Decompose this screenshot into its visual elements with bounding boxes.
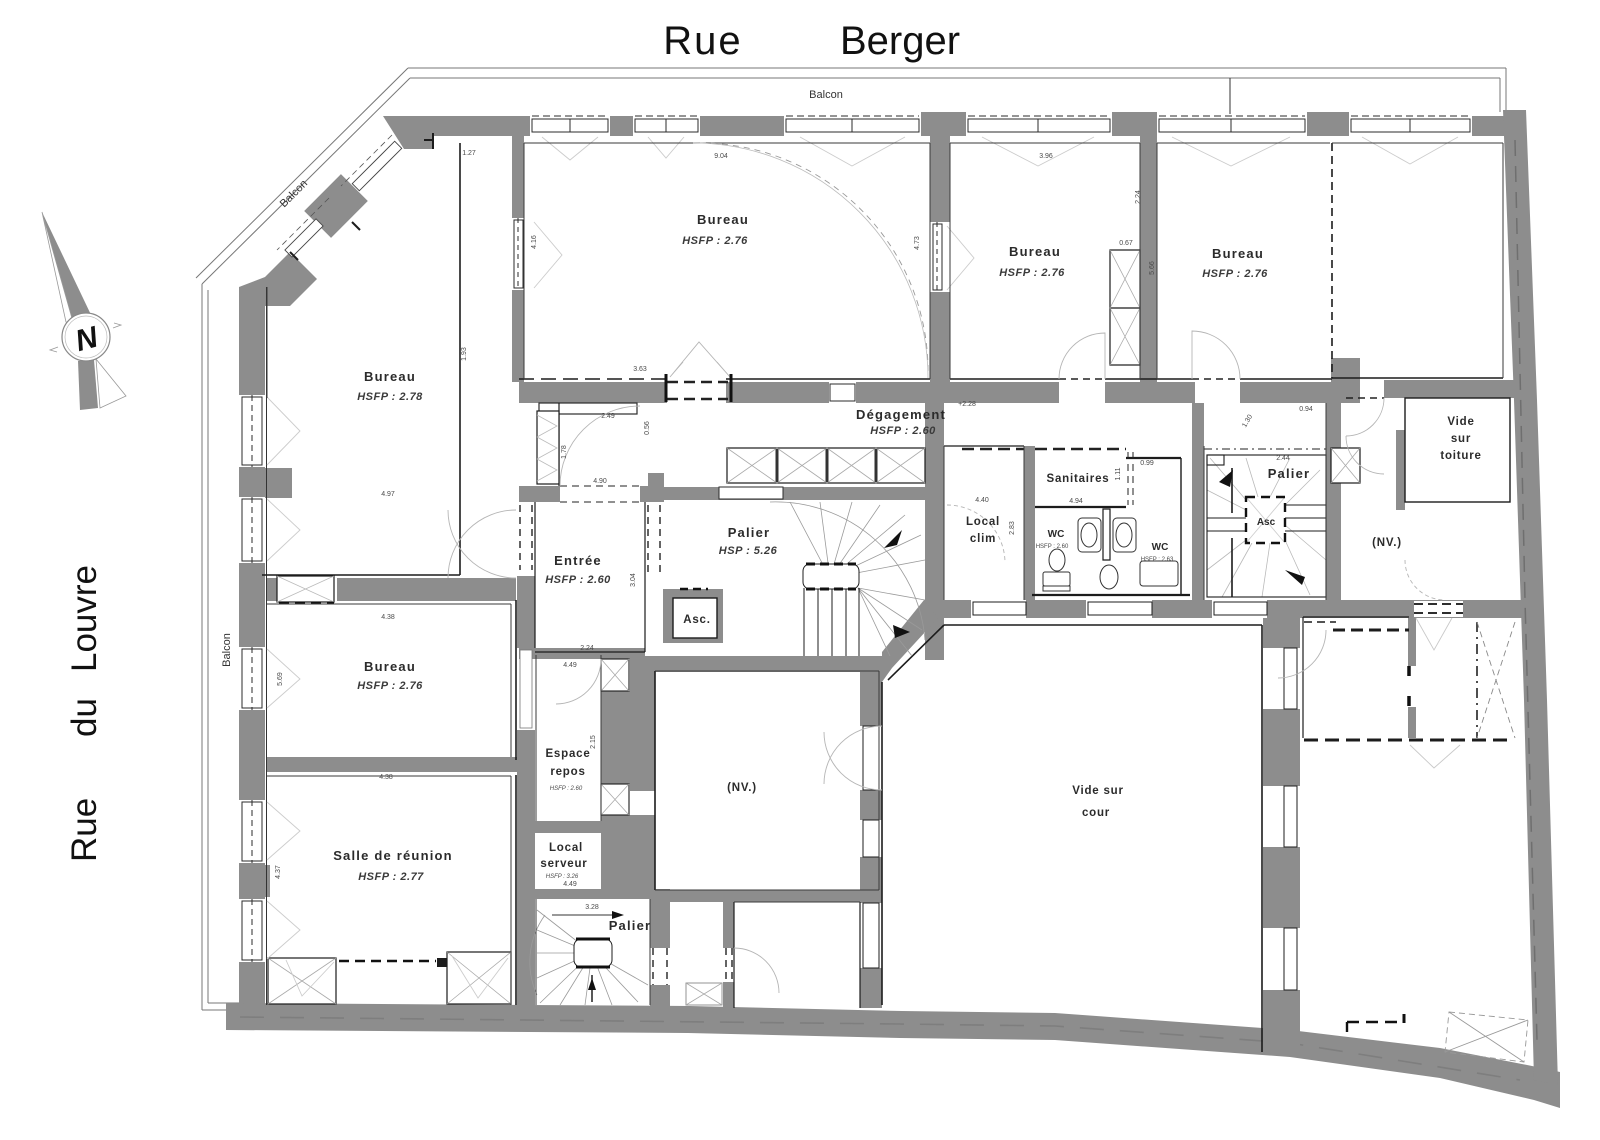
svg-text:5.66: 5.66	[1149, 261, 1156, 275]
svg-text:WC: WC	[1152, 542, 1169, 553]
svg-text:HSFP : 2.76: HSFP : 2.76	[999, 267, 1065, 279]
svg-text:Vide: Vide	[1447, 416, 1474, 428]
svg-text:2.83: 2.83	[1009, 521, 1016, 535]
svg-text:9.04: 9.04	[714, 153, 728, 160]
svg-text:HSFP : 2.77: HSFP : 2.77	[358, 871, 424, 883]
svg-text:Louvre: Louvre	[65, 565, 104, 672]
svg-text:Asc.: Asc.	[683, 614, 711, 626]
svg-text:Balcon: Balcon	[221, 633, 233, 667]
svg-text:1.27: 1.27	[462, 150, 476, 157]
svg-text:HSFP : 2.76: HSFP : 2.76	[357, 680, 423, 692]
svg-text:HSFP : 2.60: HSFP : 2.60	[545, 574, 611, 586]
svg-text:Palier: Palier	[728, 525, 771, 540]
svg-text:4.49: 4.49	[563, 662, 577, 669]
svg-text:3.28: 3.28	[585, 904, 599, 911]
svg-text:Local: Local	[966, 516, 1000, 528]
svg-text:Bureau: Bureau	[697, 212, 749, 227]
svg-text:repos: repos	[550, 766, 585, 778]
svg-text:HSFP : 2.60: HSFP : 2.60	[870, 425, 936, 437]
svg-text:cour: cour	[1082, 807, 1110, 819]
svg-text:HSFP : 3.26: HSFP : 3.26	[546, 874, 579, 880]
svg-text:sur: sur	[1451, 433, 1471, 445]
svg-text:4.73: 4.73	[914, 236, 921, 250]
svg-text:(NV.): (NV.)	[1372, 537, 1402, 549]
svg-text:HSFP : 2.63: HSFP : 2.63	[1141, 557, 1174, 563]
svg-text:Local: Local	[549, 842, 583, 854]
svg-text:2.15: 2.15	[590, 735, 597, 749]
svg-text:Palier: Palier	[609, 918, 652, 933]
svg-text:HSFP : 2.76: HSFP : 2.76	[1202, 268, 1268, 280]
svg-text:4.38: 4.38	[379, 774, 393, 781]
svg-text:0.56: 0.56	[644, 421, 651, 435]
svg-text:3.04: 3.04	[630, 573, 637, 587]
svg-text:HSFP : 2.60: HSFP : 2.60	[550, 786, 583, 792]
svg-text:1.11: 1.11	[1115, 467, 1122, 480]
svg-text:HSFP : 2.78: HSFP : 2.78	[357, 391, 423, 403]
svg-text:+2.28: +2.28	[958, 401, 976, 408]
svg-text:4.90: 4.90	[593, 478, 607, 485]
svg-text:Espace: Espace	[545, 748, 590, 760]
svg-text:(NV.): (NV.)	[727, 782, 757, 794]
svg-text:4.37: 4.37	[275, 865, 282, 879]
svg-text:2.44: 2.44	[1276, 455, 1290, 462]
svg-text:4.16: 4.16	[531, 235, 538, 249]
svg-text:3.63: 3.63	[633, 366, 647, 373]
svg-text:4.49: 4.49	[563, 881, 577, 888]
svg-text:Bureau: Bureau	[364, 369, 416, 384]
svg-text:toiture: toiture	[1440, 450, 1481, 462]
svg-text:1.78: 1.78	[561, 445, 568, 459]
svg-text:Entrée: Entrée	[554, 553, 602, 568]
svg-text:clim: clim	[970, 533, 996, 545]
svg-text:1.93: 1.93	[461, 347, 468, 361]
svg-text:du: du	[65, 698, 104, 737]
svg-text:Vide sur: Vide sur	[1072, 785, 1124, 797]
svg-text:0.94: 0.94	[1299, 406, 1313, 413]
svg-text:Asc: Asc	[1257, 517, 1276, 528]
svg-text:5.69: 5.69	[277, 672, 284, 686]
svg-text:Dégagement: Dégagement	[856, 407, 946, 422]
svg-text:Bureau: Bureau	[1009, 244, 1061, 259]
svg-text:Rue: Rue	[663, 19, 742, 63]
svg-text:4.94: 4.94	[1069, 498, 1083, 505]
svg-text:Berger: Berger	[840, 19, 960, 63]
svg-text:HSP : 5.26: HSP : 5.26	[719, 545, 778, 557]
svg-text:HSFP : 2.60: HSFP : 2.60	[1036, 544, 1069, 550]
svg-text:Salle de réunion: Salle de réunion	[333, 848, 453, 863]
svg-text:2.24: 2.24	[1135, 190, 1142, 204]
svg-text:Bureau: Bureau	[1212, 246, 1264, 261]
svg-text:Rue: Rue	[65, 798, 104, 862]
svg-text:4.38: 4.38	[381, 614, 395, 621]
svg-text:4.97: 4.97	[381, 491, 395, 498]
svg-text:Balcon: Balcon	[809, 89, 843, 101]
svg-text:2.49: 2.49	[601, 413, 615, 420]
svg-text:0.67: 0.67	[1119, 240, 1133, 247]
svg-text:Sanitaires: Sanitaires	[1047, 473, 1110, 485]
svg-text:HSFP : 2.76: HSFP : 2.76	[682, 235, 748, 247]
svg-text:serveur: serveur	[540, 858, 587, 870]
svg-text:4.40: 4.40	[975, 497, 989, 504]
svg-text:Palier: Palier	[1268, 466, 1311, 481]
svg-text:Bureau: Bureau	[364, 659, 416, 674]
svg-text:3.96: 3.96	[1039, 153, 1053, 160]
svg-text:2.24: 2.24	[580, 645, 594, 652]
svg-text:0.99: 0.99	[1140, 460, 1154, 467]
svg-text:WC: WC	[1048, 529, 1065, 540]
